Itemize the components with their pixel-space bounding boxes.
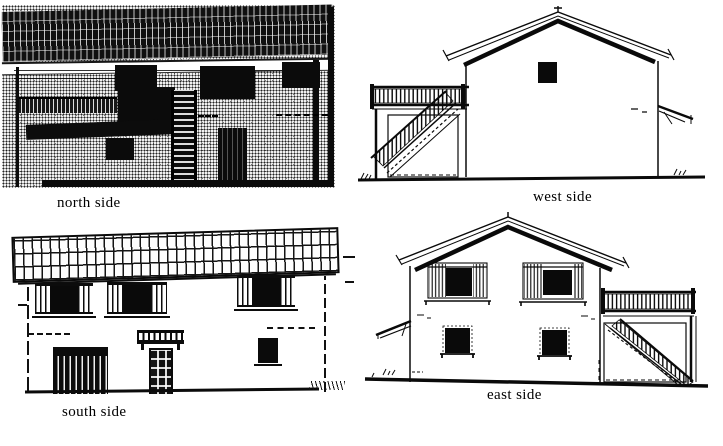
east-small-window [440, 326, 475, 358]
grass-tuft [674, 169, 686, 175]
window-sill [234, 309, 298, 311]
east-balcony-railing [601, 288, 696, 316]
window-shutter [280, 278, 295, 307]
stray-dash [343, 256, 355, 258]
south-shuttered-window [35, 283, 93, 314]
window-shutter [78, 286, 93, 314]
north-awning [26, 119, 176, 140]
window-sill [537, 356, 572, 360]
west-level-mark [631, 109, 647, 112]
south-small-window [258, 338, 278, 363]
north-level-mark [198, 115, 218, 117]
east-staircase [605, 319, 693, 386]
roof-finial [554, 6, 562, 12]
north-level-mark [276, 114, 328, 116]
north-right-edge [328, 7, 334, 187]
north-left-post [16, 67, 19, 187]
north-wall-line [14, 70, 320, 71]
window-pane [446, 268, 472, 296]
south-wall-left [27, 283, 29, 391]
window-pane [50, 286, 78, 314]
north-elevation-panel [2, 5, 335, 188]
west-elevation-panel [357, 5, 709, 187]
door-canopy-railing [137, 330, 184, 344]
north-ground-line [42, 180, 334, 187]
window-sill [104, 316, 170, 318]
window-shutter [107, 285, 123, 314]
north-right-post [313, 60, 319, 187]
east-shuttered-window [519, 263, 587, 306]
west-gable-window [538, 62, 557, 83]
grass-tuft [372, 369, 395, 377]
east-small-window [537, 328, 572, 360]
garage-door [53, 347, 108, 394]
east-gable-roof [396, 212, 629, 270]
east-level-mark [417, 315, 595, 319]
canopy-bracket [177, 344, 180, 350]
house-elevations-figure: north side [0, 0, 723, 446]
front-door [149, 348, 173, 394]
south-level-mark [28, 333, 70, 335]
north-tiled-roof [1, 5, 333, 62]
south-elevation-panel [10, 226, 355, 398]
north-door [218, 128, 247, 185]
west-awning [631, 106, 693, 124]
south-caption: south side [62, 404, 126, 421]
east-shuttered-window [424, 263, 491, 305]
west-gable-roof [443, 6, 674, 65]
east-awning [376, 321, 411, 339]
window-sill [519, 302, 587, 306]
window-shutter [151, 285, 167, 314]
south-shuttered-window [237, 275, 295, 307]
south-wall-tick [18, 304, 27, 306]
canopy-bracket [141, 344, 144, 350]
west-caption: west side [533, 189, 592, 206]
stray-dash [345, 281, 354, 283]
north-caption: north side [57, 195, 121, 212]
north-balcony-railing [17, 97, 117, 113]
window-shutter [237, 278, 252, 307]
window-sill [254, 364, 282, 366]
window-pane [252, 278, 280, 307]
grass-tuft [361, 173, 371, 179]
window-sill [424, 301, 491, 305]
north-window [200, 66, 255, 99]
north-staircase-edge [171, 90, 197, 185]
east-elevation-panel [363, 212, 715, 402]
window-sill [32, 316, 96, 318]
south-shuttered-window [107, 282, 167, 314]
south-level-mark [267, 327, 315, 329]
grass-tuft [309, 381, 345, 390]
east-caption: east side [487, 387, 542, 404]
window-sill [440, 354, 475, 358]
south-wall-right [324, 276, 326, 392]
north-awning-pillar [106, 138, 134, 160]
window-pane [123, 285, 152, 314]
north-wall-line [14, 78, 320, 79]
window-shutter [35, 286, 50, 314]
window-pane [543, 270, 572, 295]
